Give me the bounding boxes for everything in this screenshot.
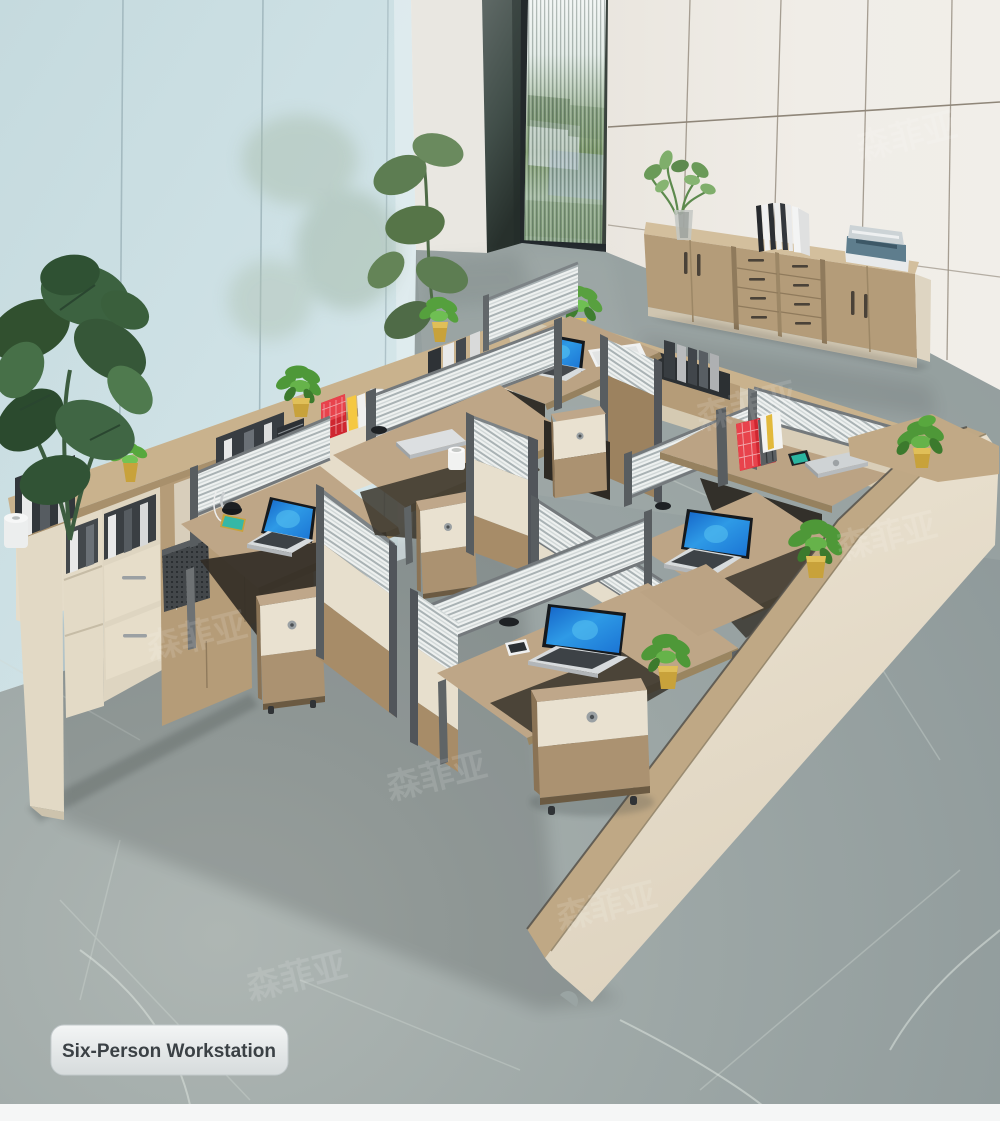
svg-text:Six-Person Workstation: Six-Person Workstation	[62, 1041, 276, 1062]
